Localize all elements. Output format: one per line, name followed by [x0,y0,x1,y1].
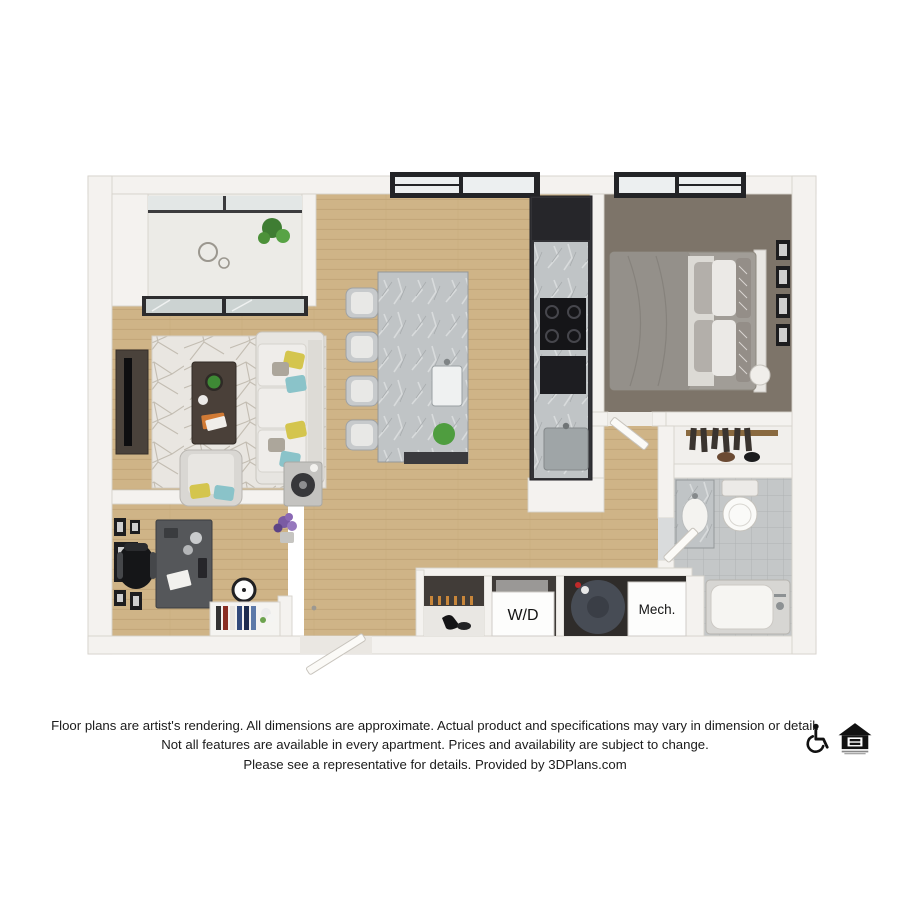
entry-door-handle [312,606,317,611]
equal-housing-opportunity-icon [838,722,872,756]
wheelchair-accessible-icon [805,722,831,754]
balcony-sliding-door [142,296,308,316]
outer-wall-right [792,176,816,654]
island-plant [433,423,455,445]
coffee-table [192,362,236,444]
shoes-black [744,452,760,462]
corridor-floor [590,512,606,576]
shoe-closet-left-wall [416,570,424,636]
bedside-basket [750,365,770,385]
pattern-pillow-2 [268,438,285,452]
armchair [180,450,242,506]
disclaimer-line-3: Please see a representative for details.… [0,755,870,774]
desk-lamp [190,532,202,544]
disclaimer-line-2: Not all features are available in every … [0,735,870,754]
bathtub [706,580,790,634]
balcony-kitchen-wall [302,194,316,306]
entry-floor [304,490,424,638]
outer-wall-left [88,176,112,654]
wd-label: W/D [507,607,538,624]
table-plant [208,376,221,389]
kitchen-island [378,272,468,464]
table-vase [198,395,208,405]
bookshelf [210,602,280,636]
disclaimer-line-1: Floor plans are artist's rendering. All … [0,716,870,735]
outer-wall-bottom [88,636,816,654]
tv-console [116,350,148,454]
toilet [722,480,758,531]
bedroom [610,240,790,392]
sofa [256,332,324,484]
hallway-floor [604,426,660,576]
hallway-bathroom-wall-upper [658,426,674,518]
vanity [676,480,714,548]
island-faucet [444,359,450,365]
armchair-teal-pillow [213,485,235,502]
bedroom-door-jamb-left [590,412,608,426]
armchair-yellow-pillow [189,483,211,500]
mech-closet: Mech. [564,576,686,636]
mech-tub-divider-wall [686,576,704,636]
side-table [284,462,322,506]
cup [310,464,318,472]
balcony-railing-glass [148,196,302,213]
kitchen-window [390,172,540,198]
mech-label: Mech. [639,602,676,617]
shoe-closet [424,576,484,636]
shoe-wd-divider [484,576,492,636]
washer-dryer-closet: W/D [492,576,556,636]
icon-caption-blur [842,751,869,753]
footer-icons [805,722,872,756]
disclaimer-text: Floor plans are artist's rendering. All … [0,716,870,774]
kitchen-faucet [563,423,569,429]
bed [610,250,766,392]
floor-plan-page: W/D Mech. [0,0,900,900]
closet-rod [686,430,778,436]
cooktop [540,298,586,350]
vanity-sink [682,498,708,534]
tub-faucet [776,602,784,610]
closet-row-header-wall [416,568,692,576]
island-sink [432,366,462,406]
kitchen-counter-run [530,196,592,480]
wd-mech-divider [556,576,564,636]
kitchen-sink [544,428,588,470]
duvet-fold [610,252,690,390]
balcony-side-wall [112,194,148,306]
wall-oven [540,356,586,394]
accent-pillow-1 [736,258,751,318]
teal-pillow [285,375,307,394]
bedroom-closet-wall [666,412,792,426]
tv-screen [124,358,132,446]
closet-bathroom-wall [674,464,792,478]
bedroom-window [614,172,746,198]
vanity-faucet [692,493,698,499]
entry-closet-row: W/D Mech. [424,576,686,636]
desk [156,520,212,608]
floor-plan-render: W/D Mech. [0,0,900,700]
pattern-pillow [272,362,289,376]
accent-pillow-2 [736,322,751,382]
white-pillow-1 [712,260,736,316]
shoes-brown [717,452,735,462]
refrigerator [532,198,590,240]
kitchen-return-wall [528,478,604,512]
white-pillow-2 [712,320,736,376]
water-heater-light [575,582,581,588]
